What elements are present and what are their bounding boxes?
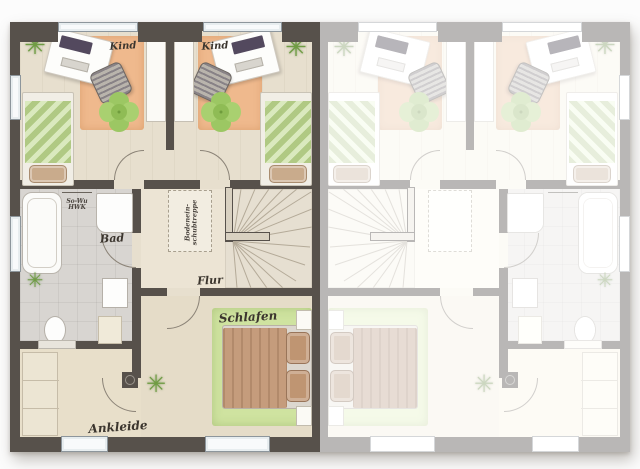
nightstand-bottom — [296, 406, 312, 426]
wardrobe-dressing — [22, 352, 58, 436]
unit-left: Bodenein- schubtreppe — [10, 22, 320, 452]
room-label-flur: Flur — [186, 272, 235, 288]
utility-note: So-Wu HWK — [58, 195, 96, 215]
wall-hall-bedroom-b — [200, 288, 312, 296]
wall-kind-divider — [166, 31, 174, 150]
wardrobe-divider — [23, 380, 59, 381]
blanket-kind-left — [25, 101, 71, 163]
window-bottom-left — [61, 436, 108, 452]
wall-bath-right-lower — [132, 268, 141, 378]
toilet-tank — [38, 340, 76, 349]
wall-pier-corner — [10, 22, 58, 42]
room-label-bad: Bad — [88, 229, 137, 247]
pillow-bedroom-top — [286, 332, 310, 364]
washbasin — [102, 278, 128, 308]
wardrobe-kind-right — [174, 34, 194, 122]
chimney-block — [122, 372, 138, 388]
utility-note-line2: HWK — [68, 205, 86, 211]
floorplan-canvas: Bodenein- schubtreppe — [0, 0, 640, 469]
bed-kind-left — [22, 92, 74, 186]
keyboard-icon — [234, 57, 263, 73]
wall-mid-b — [144, 180, 200, 189]
pouf-kind-left — [99, 92, 139, 132]
stair-railing-horizontal — [225, 232, 270, 241]
window-bottom-right — [205, 436, 270, 452]
attic-hatch-outline: Bodenein- schubtreppe — [168, 190, 212, 252]
building: Bodenein- schubtreppe — [10, 22, 630, 452]
wall-bath-right-upper — [132, 189, 141, 233]
wall-party — [312, 22, 320, 452]
pillow-bedroom-bottom — [286, 370, 310, 402]
window-left-upper — [10, 75, 21, 120]
wall-exterior-bottom — [10, 437, 320, 452]
blanket-kind-right — [265, 101, 311, 163]
shower — [96, 193, 133, 233]
attic-note-line2: schubtreppe — [191, 200, 198, 245]
unit-right: Bodenein- schubtreppe — [320, 22, 630, 452]
wardrobe-kind-left — [146, 34, 166, 122]
wall-pier-center — [138, 22, 202, 42]
wardrobe-divider — [23, 408, 59, 409]
dimension-line — [62, 192, 92, 193]
pillow-kind-left — [29, 165, 67, 183]
window-top-left — [58, 22, 138, 32]
bed-kind-right — [260, 92, 312, 186]
keyboard-icon — [60, 57, 89, 73]
nightstand-top — [296, 310, 312, 330]
fade-overlay — [320, 22, 630, 452]
plant-icon: ✳ — [144, 374, 168, 400]
pillow-kind-right — [269, 165, 307, 183]
double-bed — [222, 325, 312, 409]
pouf-kind-right — [201, 92, 241, 132]
plant-icon: ✳ — [24, 270, 46, 292]
window-top-right — [203, 22, 282, 32]
laptop-icon — [59, 35, 93, 54]
bath-cabinet — [98, 316, 122, 344]
window-left-lower — [10, 216, 21, 272]
wall-hall-bedroom-a — [132, 288, 167, 296]
blanket-bedroom — [223, 328, 287, 408]
bathtub — [22, 192, 62, 274]
attic-stairs-note: Bodenein- schubtreppe — [184, 192, 199, 254]
